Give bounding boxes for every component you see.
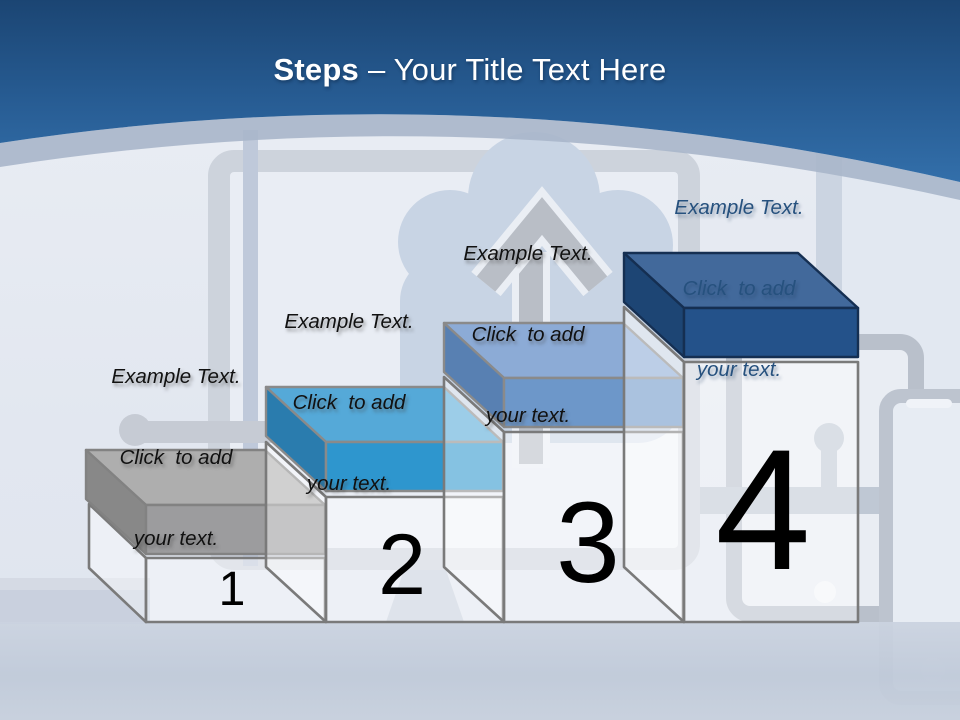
label-line: Click to add — [463, 321, 592, 348]
step-1-label[interactable]: Example Text. Click to add your text. — [111, 309, 240, 606]
step-3-label[interactable]: Example Text. Click to add your text. — [463, 186, 592, 483]
label-line: your text. — [284, 470, 413, 497]
title-prefix: Steps — [274, 52, 359, 87]
label-line: Example Text. — [674, 194, 803, 221]
title-suffix: – Your Title Text Here — [368, 52, 667, 87]
step-4-number: 4 — [715, 424, 811, 596]
slide-title[interactable]: Steps– Your Title Text Here — [0, 52, 950, 88]
label-line: Click to add — [674, 275, 803, 302]
label-line: your text. — [674, 356, 803, 383]
label-line: Example Text. — [463, 240, 592, 267]
step-2-label[interactable]: Example Text. Click to add your text. — [284, 254, 413, 551]
label-line: Example Text. — [284, 308, 413, 335]
label-line: Example Text. — [111, 363, 240, 390]
label-line: your text. — [111, 525, 240, 552]
step-3-number: 3 — [556, 486, 620, 601]
label-line: Click to add — [111, 444, 240, 471]
label-line: Click to add — [284, 389, 413, 416]
label-line: your text. — [463, 402, 592, 429]
slide-canvas: Steps– Your Title Text Here — [0, 0, 960, 720]
step-4-label[interactable]: Example Text. Click to add your text. — [674, 140, 803, 437]
